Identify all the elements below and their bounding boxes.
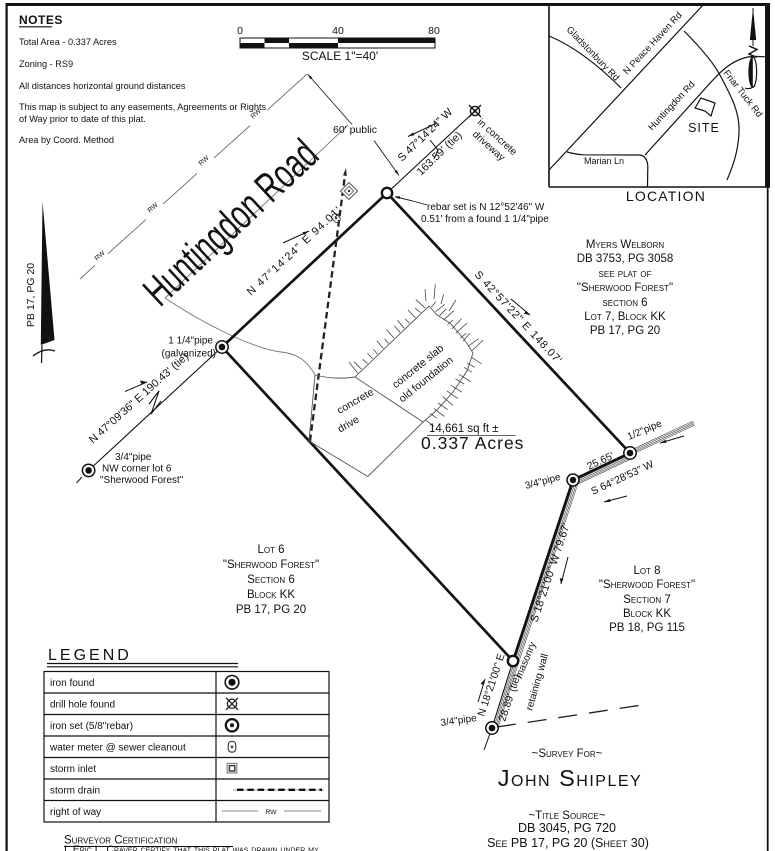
svg-text:60' public: 60' public: [333, 124, 377, 136]
svg-text:Lot 7, Block KK: Lot 7, Block KK: [584, 311, 666, 323]
svg-text:~Survey For~: ~Survey For~: [532, 748, 603, 760]
svg-text:0.51' from a found 1 1/4"pipe: 0.51' from a found 1 1/4"pipe: [421, 214, 549, 225]
svg-text:drill hole found: drill hole found: [50, 700, 115, 711]
svg-text:storm drain: storm drain: [50, 786, 100, 797]
svg-text:RW: RW: [265, 809, 277, 816]
svg-text:0.337 Acres: 0.337 Acres: [421, 433, 524, 453]
svg-text:PB 18, PG 115: PB 18, PG 115: [609, 622, 685, 634]
svg-text:"Sherwood Forest": "Sherwood Forest": [599, 579, 695, 591]
svg-text:Lot 6: Lot 6: [257, 544, 284, 556]
svg-text:PB 17, PG 20: PB 17, PG 20: [236, 604, 306, 616]
svg-text:Total Area - 0.337 Acres: Total Area - 0.337 Acres: [19, 37, 117, 47]
svg-text:DB 3753, PG 3058: DB 3753, PG 3058: [577, 253, 674, 265]
svg-text:1 1/4"pipe: 1 1/4"pipe: [168, 336, 213, 347]
svg-text:LOCATION: LOCATION: [626, 188, 706, 204]
svg-text:All distances horizontal groun: All distances horizontal ground distance…: [19, 81, 186, 91]
svg-text:See PB 17, PG 20 (Sheet 30): See PB 17, PG 20 (Sheet 30): [487, 836, 649, 850]
svg-text:Lot 8: Lot 8: [633, 565, 660, 577]
svg-text:Section 7: Section 7: [623, 594, 670, 606]
svg-text:see plat of: see plat of: [599, 268, 652, 280]
svg-text:Section 6: Section 6: [247, 574, 294, 586]
svg-text:PB 17, PG 20: PB 17, PG 20: [590, 325, 660, 337]
svg-text:0: 0: [237, 25, 243, 37]
svg-text:Marian Ln: Marian Ln: [584, 156, 624, 166]
svg-text:Block KK: Block KK: [623, 608, 671, 620]
svg-text:I, Eric L. Craver certify that: I, Eric L. Craver certify that this plat…: [64, 844, 319, 851]
svg-text:3/4"pipe: 3/4"pipe: [115, 452, 152, 463]
svg-text:SITE: SITE: [688, 121, 720, 135]
svg-text:section 6: section 6: [602, 297, 647, 309]
svg-text:water meter @ sewer cleanout: water meter @ sewer cleanout: [49, 743, 186, 754]
svg-text:LEGEND: LEGEND: [48, 647, 132, 664]
svg-text:NOTES: NOTES: [19, 13, 63, 27]
svg-text:storm inlet: storm inlet: [50, 764, 96, 775]
svg-text:"Sherwood Forest": "Sherwood Forest": [223, 559, 319, 571]
svg-text:NW corner lot 6: NW corner lot 6: [102, 464, 172, 475]
svg-text:of Way prior to date of this p: of Way prior to date of this plat.: [19, 114, 146, 124]
svg-text:(galvanized): (galvanized): [162, 349, 216, 360]
svg-text:rebar set is N 12°52'46" W: rebar set is N 12°52'46" W: [427, 202, 545, 213]
svg-text:Zoning - RS9: Zoning - RS9: [19, 59, 73, 69]
svg-text:Area by Coord. Method: Area by Coord. Method: [19, 135, 114, 145]
svg-text:This map is subject to any eas: This map is subject to any easements, Ag…: [19, 102, 267, 112]
svg-text:PB 17, PG 20: PB 17, PG 20: [25, 263, 37, 327]
svg-text:John Shipley: John Shipley: [498, 765, 642, 791]
svg-text:"Sherwood Forest": "Sherwood Forest": [577, 282, 673, 294]
svg-text:80: 80: [428, 25, 440, 37]
svg-text:"Sherwood Forest": "Sherwood Forest": [100, 475, 184, 486]
svg-text:SCALE 1"=40': SCALE 1"=40': [302, 49, 378, 63]
svg-text:40: 40: [332, 25, 344, 37]
svg-text:iron set (5/8"rebar): iron set (5/8"rebar): [50, 721, 133, 732]
svg-text:Myers Welborn: Myers Welborn: [586, 239, 665, 251]
svg-text:iron found: iron found: [50, 678, 94, 689]
svg-text:DB 3045, PG 720: DB 3045, PG 720: [518, 821, 616, 835]
svg-text:Block KK: Block KK: [247, 589, 295, 601]
svg-text:right of way: right of way: [50, 807, 101, 818]
